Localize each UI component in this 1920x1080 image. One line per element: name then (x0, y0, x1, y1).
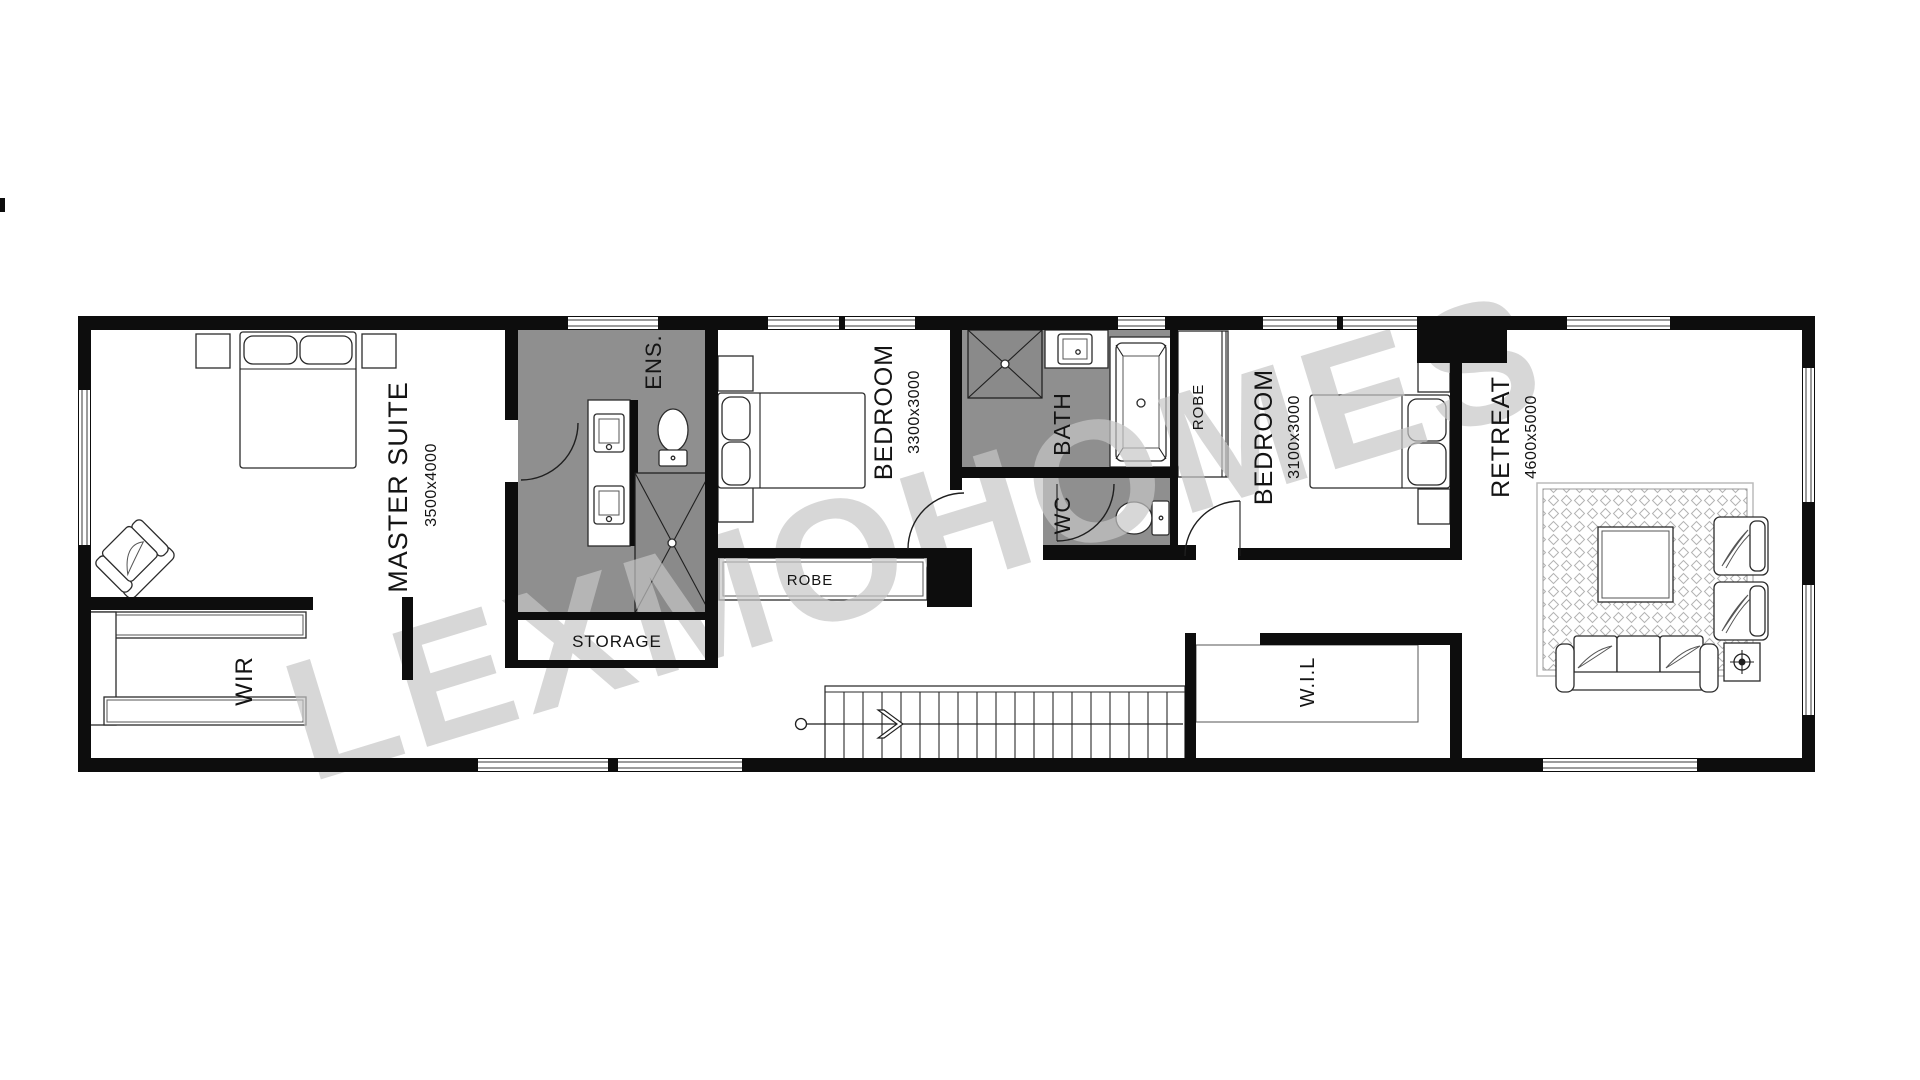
window (1803, 368, 1814, 502)
label-master-suite-dims: 3500x4000 (423, 443, 440, 527)
edge-artifact (0, 198, 5, 212)
wir-shelves (88, 612, 306, 725)
label-bedroom1: BEDROOM (870, 344, 898, 480)
window (79, 390, 90, 545)
armchair (1714, 582, 1768, 640)
armchair (1714, 517, 1768, 575)
label-bath: BATH (1049, 392, 1075, 456)
pillow (722, 397, 750, 440)
window (768, 316, 915, 330)
label-retreat-dims: 4600x5000 (1523, 395, 1540, 479)
label-bedroom1-dims: 3300x3000 (906, 370, 923, 454)
floor-plan: LEXMOHOMES (0, 0, 1920, 1080)
window (618, 759, 742, 771)
pillow (722, 442, 750, 485)
bedside-table (196, 334, 230, 368)
staircase (796, 686, 1186, 762)
window (1118, 317, 1165, 329)
label-wir: WIR (231, 656, 258, 706)
window (478, 759, 608, 771)
bedside-table (1418, 489, 1450, 524)
label-retreat: RETREAT (1487, 376, 1515, 498)
window (568, 317, 658, 329)
label-storage: STORAGE (572, 632, 662, 651)
sofa (1556, 636, 1718, 692)
window (1567, 317, 1670, 329)
window (1263, 316, 1417, 330)
retreat-furniture (1537, 483, 1768, 692)
pillow (244, 336, 297, 364)
pillow (300, 336, 352, 364)
coffee-table (1598, 527, 1673, 602)
label-robe1: ROBE (787, 572, 834, 589)
label-bedroom2: BEDROOM (1250, 369, 1278, 505)
shower (968, 330, 1042, 398)
bedside-table (718, 356, 753, 391)
label-ensuite: ENS. (641, 334, 666, 389)
label-robe2: ROBE (1190, 384, 1207, 431)
label-bedroom2-dims: 3100x3000 (1286, 395, 1303, 479)
label-wc: WC (1050, 496, 1075, 535)
armchair (92, 516, 176, 600)
lamp-table (1724, 643, 1760, 681)
window (1803, 585, 1814, 715)
label-wil: W.I.L (1297, 657, 1319, 708)
window (1543, 759, 1697, 771)
label-master-suite: MASTER SUITE (383, 381, 413, 593)
bedside-table (362, 334, 396, 368)
toilet (658, 409, 688, 451)
